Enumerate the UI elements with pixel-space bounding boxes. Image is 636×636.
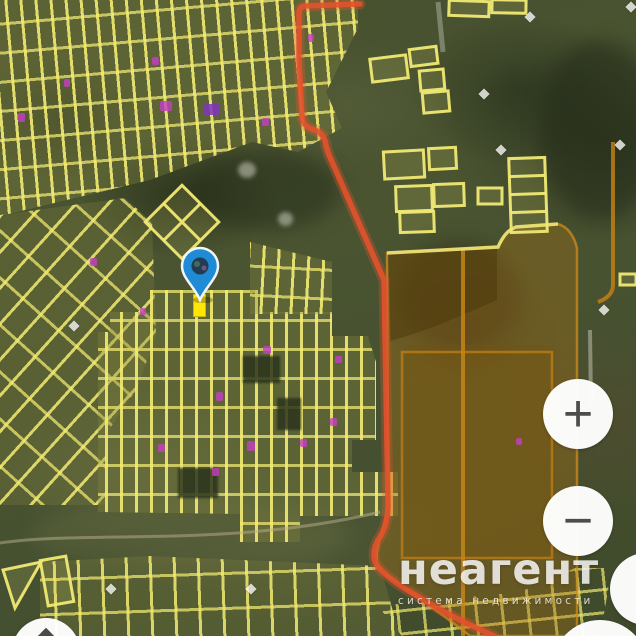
zoom-out-button[interactable]: − <box>543 486 613 556</box>
pin-icon <box>177 245 223 303</box>
cadastral-overlay <box>0 0 636 636</box>
zoom-in-button[interactable]: + <box>543 379 613 449</box>
chevron-up-icon <box>32 628 60 636</box>
map-canvas[interactable]: неагент система недвижимости + − <box>0 0 636 636</box>
plus-icon: + <box>563 381 593 447</box>
location-pin-marker[interactable] <box>177 245 223 303</box>
minus-icon: − <box>563 488 593 554</box>
